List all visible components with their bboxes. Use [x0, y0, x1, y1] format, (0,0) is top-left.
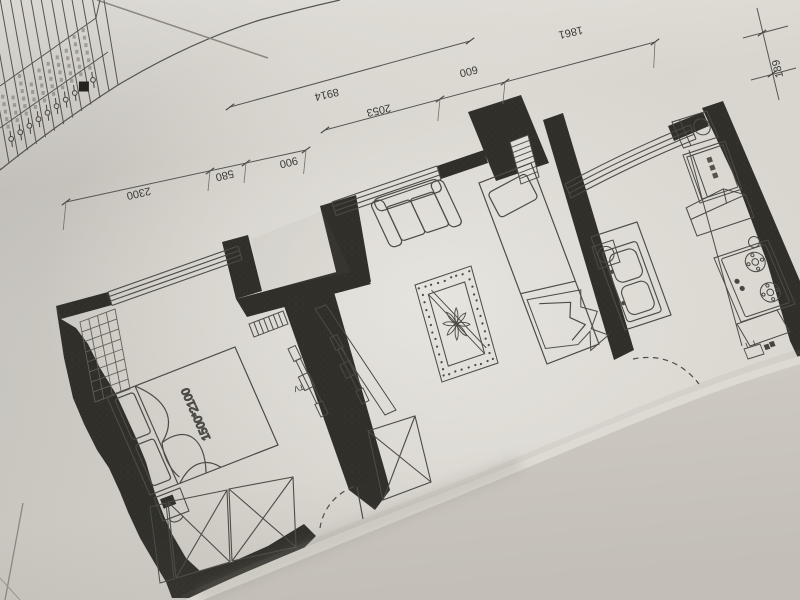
svg-text:600: 600 — [458, 63, 479, 79]
svg-text:189: 189 — [770, 58, 786, 79]
svg-text:8914: 8914 — [313, 85, 340, 102]
svg-text:1861: 1861 — [557, 23, 584, 40]
svg-text:2300: 2300 — [125, 184, 152, 201]
svg-text:900: 900 — [278, 154, 299, 170]
svg-text:2053: 2053 — [365, 101, 392, 118]
